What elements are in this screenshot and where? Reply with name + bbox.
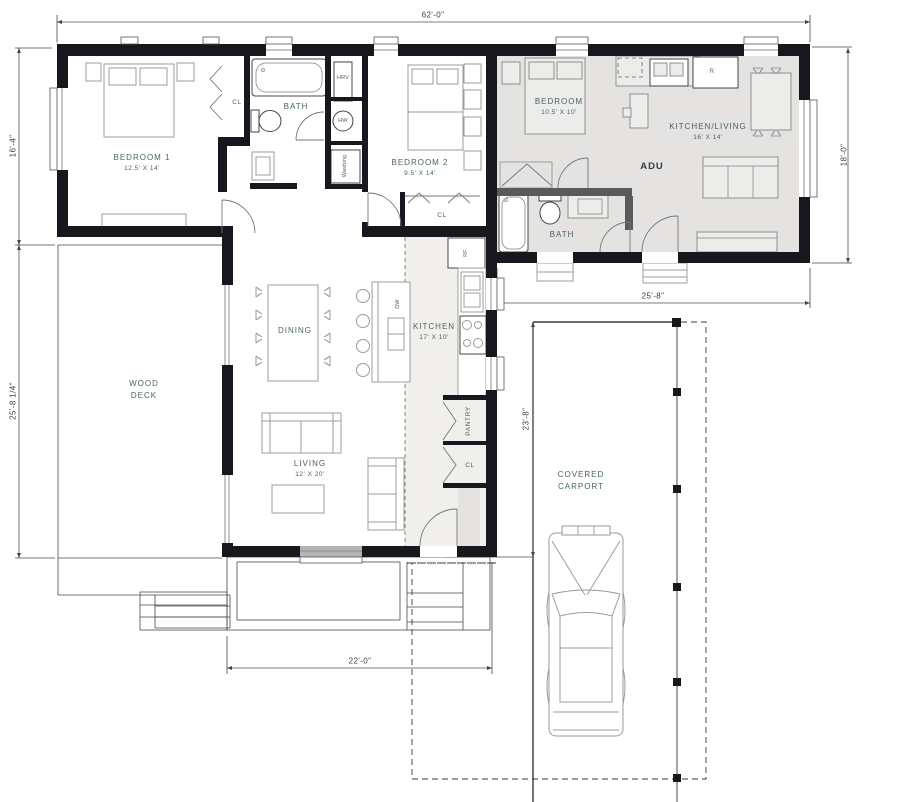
entry-porch-steps [140, 557, 490, 630]
room-label-living: LIVING 12' X 20' [294, 458, 326, 480]
floor-plan: BEDROOM 1 12.5' X 14' CL BATH HRV HW Was… [0, 0, 919, 802]
room-label-bedroom2: BEDROOM 2 9.5' X 14' [391, 157, 448, 179]
dimension-entry-porch-width: 22'-0" [349, 657, 372, 666]
dimension-adu-height: 18'-0" [840, 144, 849, 167]
room-label-main-bath: BATH [284, 101, 309, 113]
room-label-dining: DINING [278, 325, 312, 337]
dimension-carport-depth: 23'-8" [522, 408, 531, 431]
room-label-hall-closet: CL [465, 461, 475, 471]
room-label-adu-bedroom: BEDROOM 10.5' X 10' [535, 96, 583, 118]
room-label-washing: Washing [341, 155, 349, 178]
wood-deck-outline [58, 245, 230, 628]
room-label-hrv: HRV [337, 74, 349, 82]
label-fridge: RF [462, 249, 470, 257]
room-label-bedroom1: BEDROOM 1 12.5' X 14' [113, 152, 170, 174]
room-label-kitchen: KITCHEN 17' X 10' [413, 321, 455, 343]
room-label-bedroom1-closet: CL [232, 98, 242, 108]
room-label-adu-kitchen-living: KITCHEN/LIVING 16' X 14' [669, 121, 747, 143]
label-adu-fridge: R [709, 67, 714, 77]
room-label-adu-bath: BATH [550, 229, 575, 241]
car-icon [547, 526, 625, 736]
room-label-pantry: PANTRY [464, 406, 474, 435]
room-label-carport: COVERED CARPORT [545, 469, 617, 493]
dimension-overall-width: 62'-0" [422, 11, 445, 20]
room-label-wood-deck: WOOD DECK [119, 378, 169, 402]
room-label-bedroom2-closet: CL [437, 211, 447, 221]
dimension-adu-width: 25'-8" [642, 292, 665, 301]
room-label-adu: ADU [640, 160, 664, 174]
dimension-left-lower: 25'-8 1/4" [9, 382, 18, 420]
label-dishwasher: DW [394, 299, 402, 309]
dimension-left-upper: 16'-4" [9, 135, 18, 158]
room-label-hot-water: HW [338, 117, 348, 125]
